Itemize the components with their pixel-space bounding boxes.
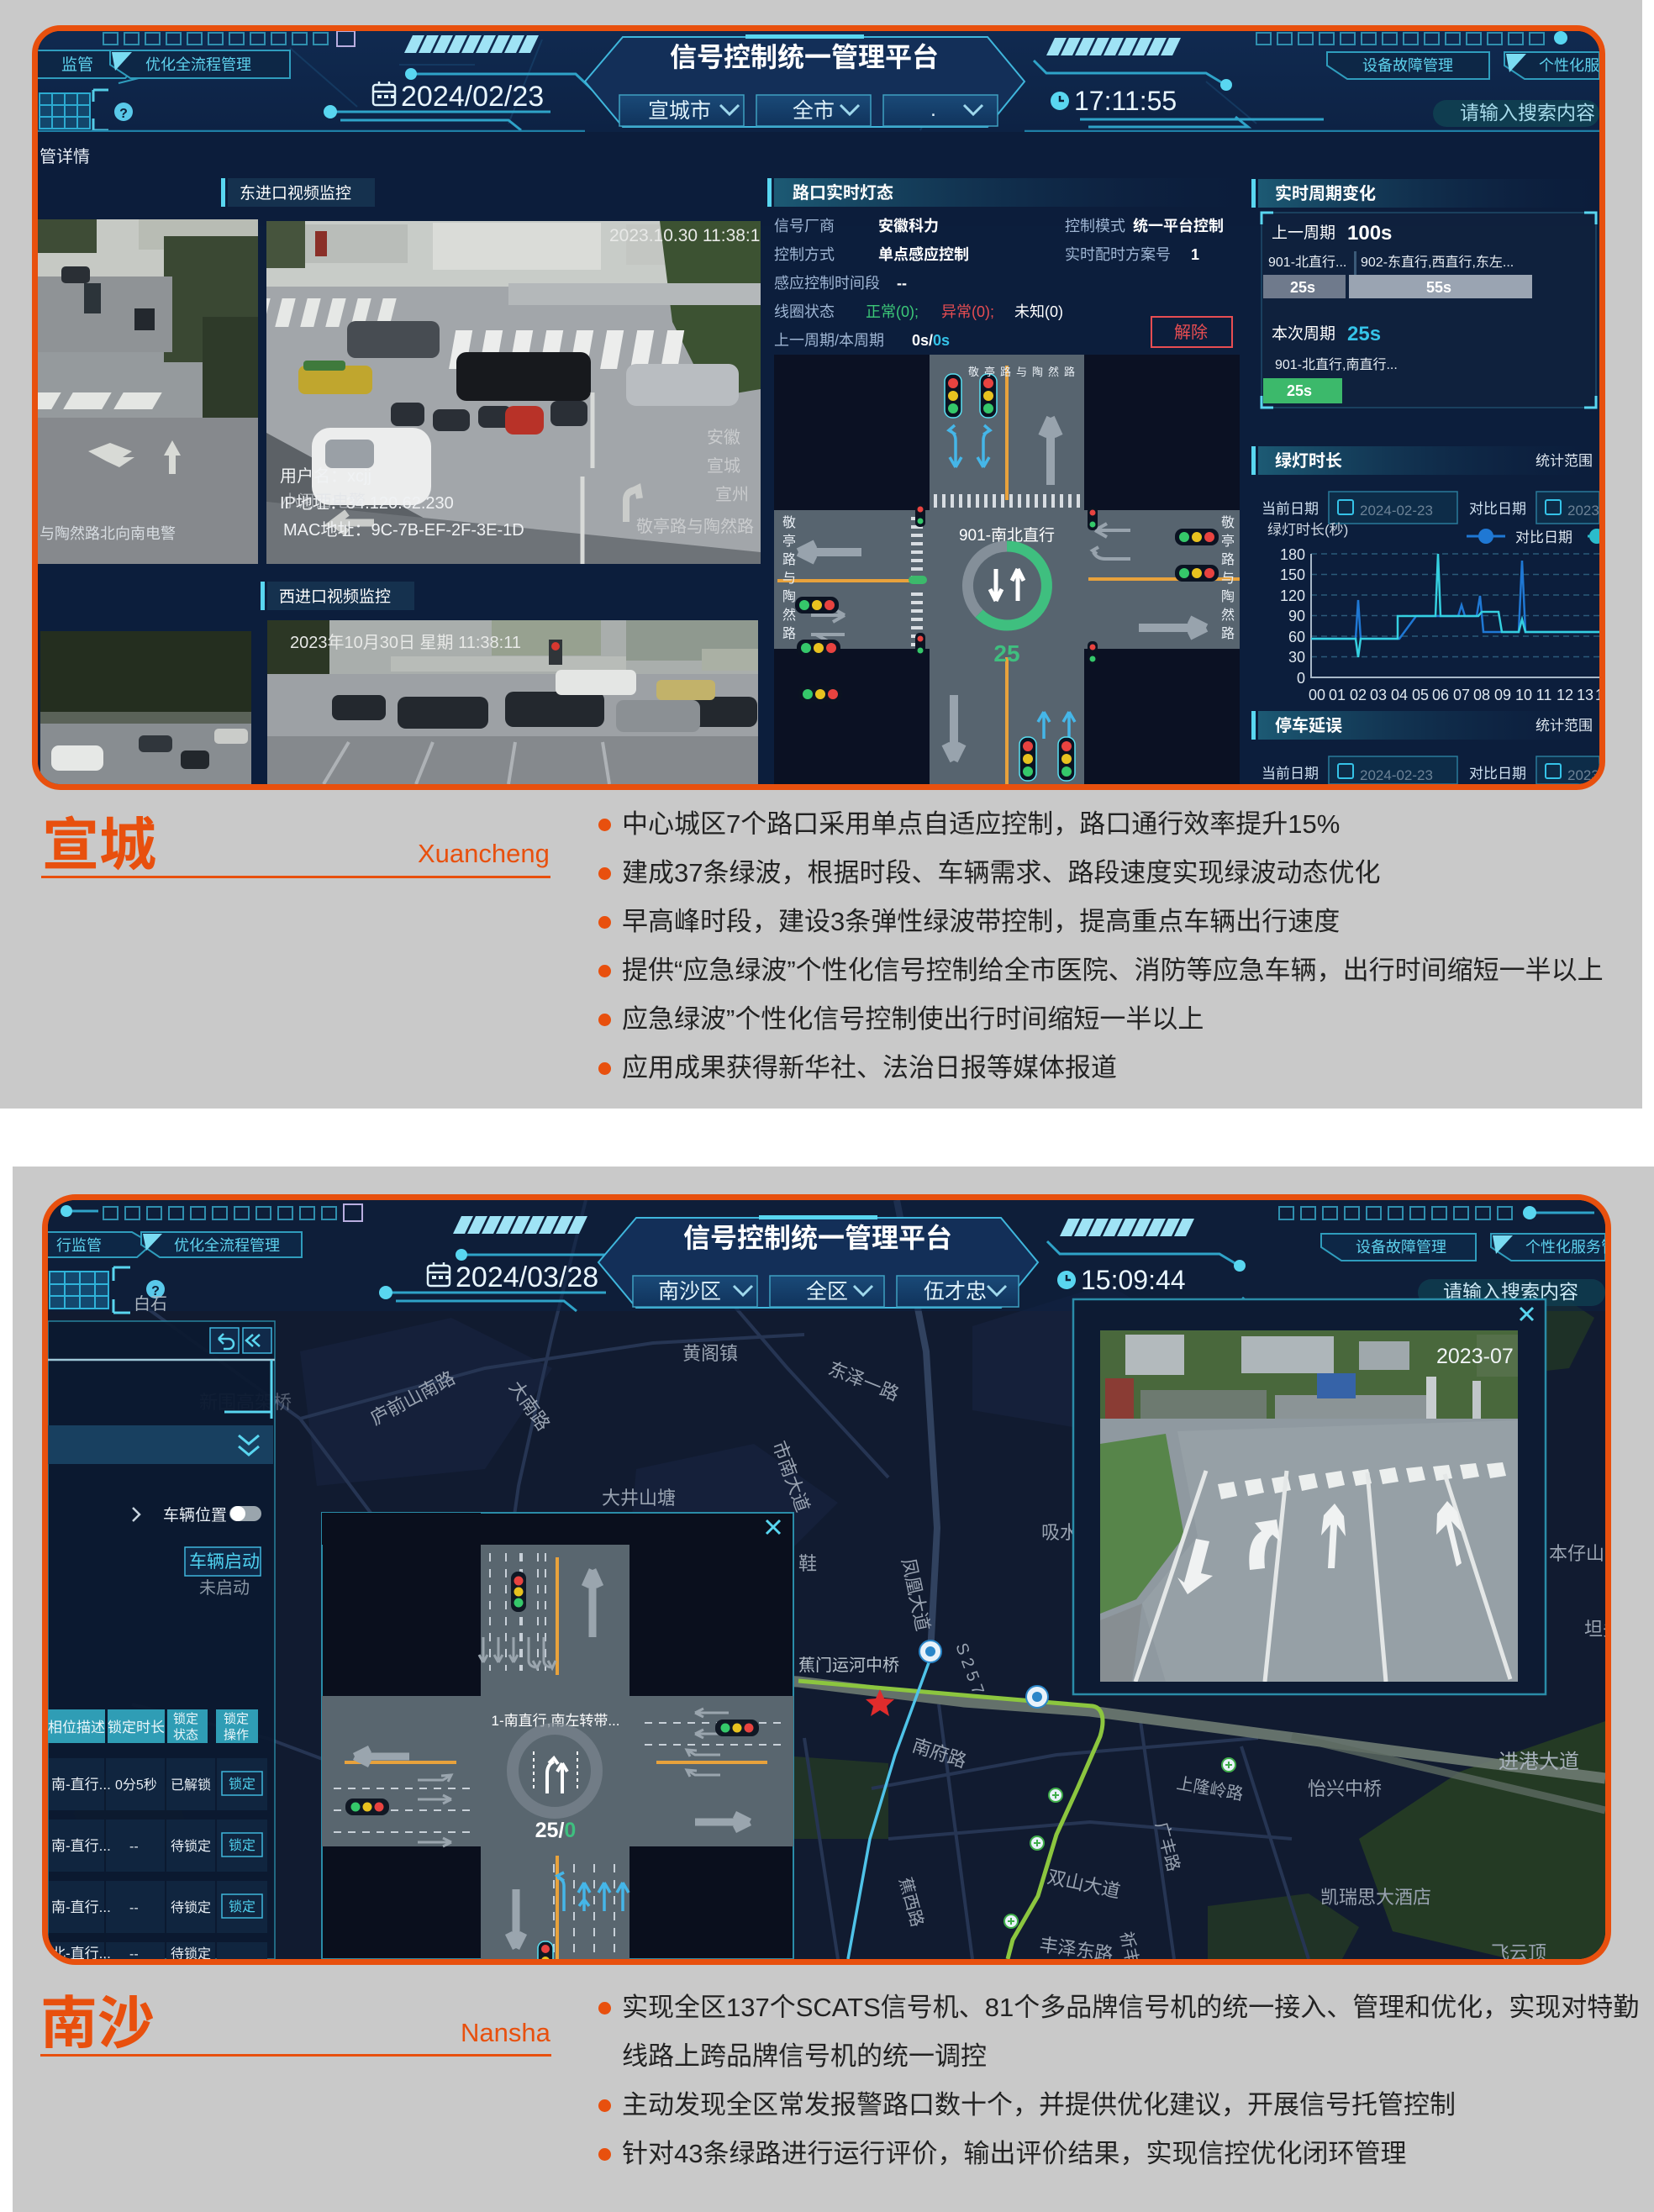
svg-text:上一周期: 上一周期: [1272, 224, 1335, 242]
svg-text:11: 11: [1536, 687, 1552, 703]
svg-text:小河西电警: 小河西电警: [282, 492, 366, 511]
svg-text:锁定: 锁定: [229, 1899, 255, 1914]
svg-text:2024-02-23: 2024-02-23: [1360, 503, 1433, 519]
svg-text:设备故障管理: 设备故障管理: [1362, 57, 1453, 74]
svg-text:相位描述: 相位描述: [48, 1720, 105, 1735]
svg-text:敬亭路与陶然路: 敬亭路与陶然路: [636, 517, 754, 536]
svg-text:2023.10.30 11:38:10: 2023.10.30 11:38:10: [609, 226, 770, 245]
svg-text:0分5秒: 0分5秒: [115, 1777, 157, 1793]
svg-text:03: 03: [1370, 687, 1387, 703]
svg-text:25: 25: [993, 640, 1019, 666]
svg-text:06: 06: [1432, 687, 1449, 703]
svg-text:个性化服务管理: 个性化服务管理: [1525, 1239, 1605, 1256]
svg-text:全市: 全市: [793, 99, 835, 123]
svg-text:25/0: 25/0: [535, 1819, 577, 1842]
svg-text:锁定: 锁定: [229, 1838, 255, 1853]
svg-text:全区: 全区: [806, 1280, 848, 1303]
svg-text:绿灯时长: 绿灯时长: [1275, 451, 1342, 471]
svg-text:东进口视频监控: 东进口视频监控: [240, 184, 351, 203]
svg-text:请输入搜索内容: 请输入搜索内容: [1460, 102, 1595, 124]
svg-text:02: 02: [1350, 687, 1367, 703]
svg-text:伍才忠: 伍才忠: [924, 1280, 987, 1303]
svg-text:.: .: [930, 97, 936, 121]
svg-text:南-直行...: 南-直行...: [51, 1777, 111, 1793]
svg-text:实时周期变化: 实时周期变化: [1275, 183, 1376, 203]
svg-text:07: 07: [1453, 687, 1470, 703]
svg-text:902-东直行,西直行,东左...: 902-东直行,西直行,东左...: [1361, 255, 1514, 270]
svg-text:2023: 2023: [1567, 767, 1599, 783]
svg-text:宣城市: 宣城市: [648, 99, 711, 123]
svg-text:控制模式: 控制模式: [1065, 218, 1125, 234]
svg-text:安徽: 安徽: [707, 428, 740, 447]
svg-text:25s: 25s: [1287, 382, 1312, 399]
svg-text:单点感应控制: 单点感应控制: [878, 245, 969, 263]
svg-text:13: 13: [1577, 687, 1593, 703]
svg-text:15:09:44: 15:09:44: [1081, 1265, 1186, 1295]
svg-text:本次周期: 本次周期: [1272, 324, 1335, 343]
svg-text:当前日期: 当前日期: [1262, 501, 1319, 517]
svg-text:0: 0: [1297, 670, 1305, 687]
svg-text:已解锁: 已解锁: [171, 1777, 211, 1793]
svg-text:正常(0);: 正常(0);: [866, 303, 919, 320]
svg-text:蕉门运河中桥: 蕉门运河中桥: [798, 1656, 899, 1675]
svg-text:锁定时长: 锁定时长: [108, 1720, 165, 1735]
svg-text:南-直行...: 南-直行...: [51, 1899, 111, 1915]
svg-text:60: 60: [1288, 629, 1305, 645]
svg-text:敬亭路与陶然路: 敬亭路与陶然路: [1221, 515, 1235, 641]
svg-text:监管: 监管: [61, 55, 93, 74]
svg-text:09: 09: [1494, 687, 1511, 703]
svg-text:西进口视频监控: 西进口视频监控: [279, 587, 391, 606]
svg-text:?: ?: [119, 107, 128, 121]
svg-text:未知(0): 未知(0): [1014, 303, 1063, 320]
svg-text:901-北直行...: 901-北直行...: [1268, 255, 1346, 270]
svg-text:120: 120: [1280, 587, 1305, 604]
svg-text:1: 1: [1191, 246, 1199, 263]
svg-text:对比日期: 对比日期: [1469, 501, 1526, 517]
svg-text:统一平台控制: 统一平台控制: [1133, 217, 1224, 234]
svg-text:锁定: 锁定: [229, 1777, 255, 1792]
svg-text:黄阁镇: 黄阁镇: [682, 1343, 738, 1364]
svg-text:用户名：xcjj: 用户名：xcjj: [280, 466, 371, 486]
svg-text:宣城: 宣城: [707, 456, 740, 476]
svg-text:个性化服务管理: 个性化服务管理: [1539, 57, 1599, 74]
svg-text:白石: 白石: [134, 1294, 167, 1314]
svg-text:鞋: 鞋: [798, 1553, 817, 1574]
svg-text:2024/03/28: 2024/03/28: [456, 1261, 598, 1293]
svg-text:信号控制统一管理平台: 信号控制统一管理平台: [683, 1223, 952, 1253]
svg-text:坦头: 坦头: [1584, 1619, 1605, 1640]
svg-text:未启动: 未启动: [199, 1578, 250, 1598]
svg-text:待锁定: 待锁定: [171, 1900, 211, 1915]
svg-text:凯瑞思大酒店: 凯瑞思大酒店: [1320, 1887, 1431, 1908]
svg-text:安徽科力: 安徽科力: [878, 218, 939, 234]
svg-text:150: 150: [1280, 566, 1305, 583]
svg-text:宣州: 宣州: [715, 485, 749, 504]
svg-text:管详情: 管详情: [40, 147, 90, 166]
svg-text:--: --: [129, 1840, 139, 1854]
svg-text:05: 05: [1412, 687, 1429, 703]
svg-text:路口实时灯态: 路口实时灯态: [793, 182, 893, 203]
svg-text:2023: 2023: [1567, 503, 1599, 519]
svg-text:上一周期/本周期: 上一周期/本周期: [774, 332, 884, 349]
svg-text:00: 00: [1309, 687, 1325, 703]
svg-text:敬亭路与陶然路: 敬亭路与陶然路: [968, 366, 1080, 378]
svg-text:统计范围: 统计范围: [1535, 453, 1593, 469]
svg-text:设备故障管理: 设备故障管理: [1356, 1239, 1446, 1256]
svg-text:操作: 操作: [224, 1728, 249, 1742]
svg-text:停车延误: 停车延误: [1275, 715, 1342, 735]
svg-text:30: 30: [1288, 649, 1305, 666]
svg-text:北-直行...: 北-直行...: [51, 1946, 111, 1959]
svg-text:待锁定: 待锁定: [171, 1946, 211, 1959]
svg-text:大井山塘: 大井山塘: [602, 1488, 676, 1509]
svg-text:当前日期: 当前日期: [1262, 766, 1319, 782]
svg-text:100s: 100s: [1347, 222, 1392, 245]
svg-text:25s: 25s: [1347, 323, 1381, 345]
svg-text:车辆位置: 车辆位置: [163, 1506, 227, 1525]
svg-text:异常(0);: 异常(0);: [941, 303, 994, 320]
svg-text:0s/0s: 0s/0s: [912, 332, 950, 349]
svg-text:实时配时方案号: 实时配时方案号: [1065, 246, 1171, 263]
svg-text:2024/02/23: 2024/02/23: [401, 81, 544, 113]
svg-text:01: 01: [1329, 687, 1346, 703]
svg-text:10: 10: [1515, 687, 1532, 703]
svg-text:南-直行...: 南-直行...: [51, 1838, 111, 1854]
svg-text:对比日期: 对比日期: [1515, 529, 1572, 545]
svg-text:与陶然路北向南电警: 与陶然路北向南电警: [40, 525, 176, 542]
svg-text:控制方式: 控制方式: [774, 246, 835, 263]
svg-text:绿灯时长(秒): 绿灯时长(秒): [1267, 522, 1348, 538]
svg-text:进港大道: 进港大道: [1499, 1751, 1579, 1773]
svg-text:--: --: [129, 1947, 139, 1959]
svg-text:--: --: [897, 275, 907, 292]
svg-text:统计范围: 统计范围: [1535, 718, 1593, 734]
svg-text:行监管: 行监管: [56, 1237, 102, 1254]
svg-text:锁定: 锁定: [224, 1712, 249, 1726]
svg-text:08: 08: [1473, 687, 1490, 703]
svg-text:2023-07: 2023-07: [1436, 1345, 1514, 1368]
svg-text:2023年10月30日 星期 11:38:11: 2023年10月30日 星期 11:38:11: [290, 633, 521, 652]
svg-text:优化全流程管理: 优化全流程管理: [145, 56, 251, 73]
svg-text:敬亭路与陶然路: 敬亭路与陶然路: [782, 515, 796, 641]
svg-text:90: 90: [1288, 608, 1305, 624]
svg-text:12: 12: [1557, 687, 1573, 703]
svg-text:对比日期: 对比日期: [1469, 766, 1526, 782]
svg-text:901-北直行,南直行...: 901-北直行,南直行...: [1275, 357, 1398, 372]
svg-text:55s: 55s: [1426, 279, 1451, 296]
svg-text:优化全流程管理: 优化全流程管理: [174, 1237, 280, 1254]
svg-text:线圈状态: 线圈状态: [774, 303, 835, 320]
svg-text:车辆启动: 车辆启动: [189, 1552, 260, 1572]
svg-text:2024-02-23: 2024-02-23: [1360, 767, 1433, 783]
svg-text:解除: 解除: [1174, 323, 1208, 342]
svg-text:状态: 状态: [173, 1728, 198, 1742]
svg-text:待锁定: 待锁定: [171, 1839, 211, 1854]
svg-text:感应控制时间段: 感应控制时间段: [774, 275, 880, 292]
svg-text:锁定: 锁定: [173, 1712, 198, 1726]
svg-text:25s: 25s: [1290, 279, 1315, 296]
svg-text:飞云顶: 飞云顶: [1491, 1942, 1546, 1959]
svg-text:信号厂商: 信号厂商: [774, 218, 835, 234]
svg-text:怡兴中桥: 怡兴中桥: [1308, 1778, 1382, 1799]
svg-text:MAC地址：9C-7B-EF-2F-3E-1D: MAC地址：9C-7B-EF-2F-3E-1D: [283, 520, 524, 540]
svg-text:14: 14: [1595, 687, 1599, 703]
svg-text:17:11:55: 17:11:55: [1074, 86, 1177, 116]
svg-text:信号控制统一管理平台: 信号控制统一管理平台: [670, 42, 939, 72]
svg-text:180: 180: [1280, 546, 1305, 563]
svg-text:南沙区: 南沙区: [658, 1280, 721, 1303]
svg-text:04: 04: [1391, 687, 1408, 703]
svg-text:--: --: [129, 1901, 139, 1915]
